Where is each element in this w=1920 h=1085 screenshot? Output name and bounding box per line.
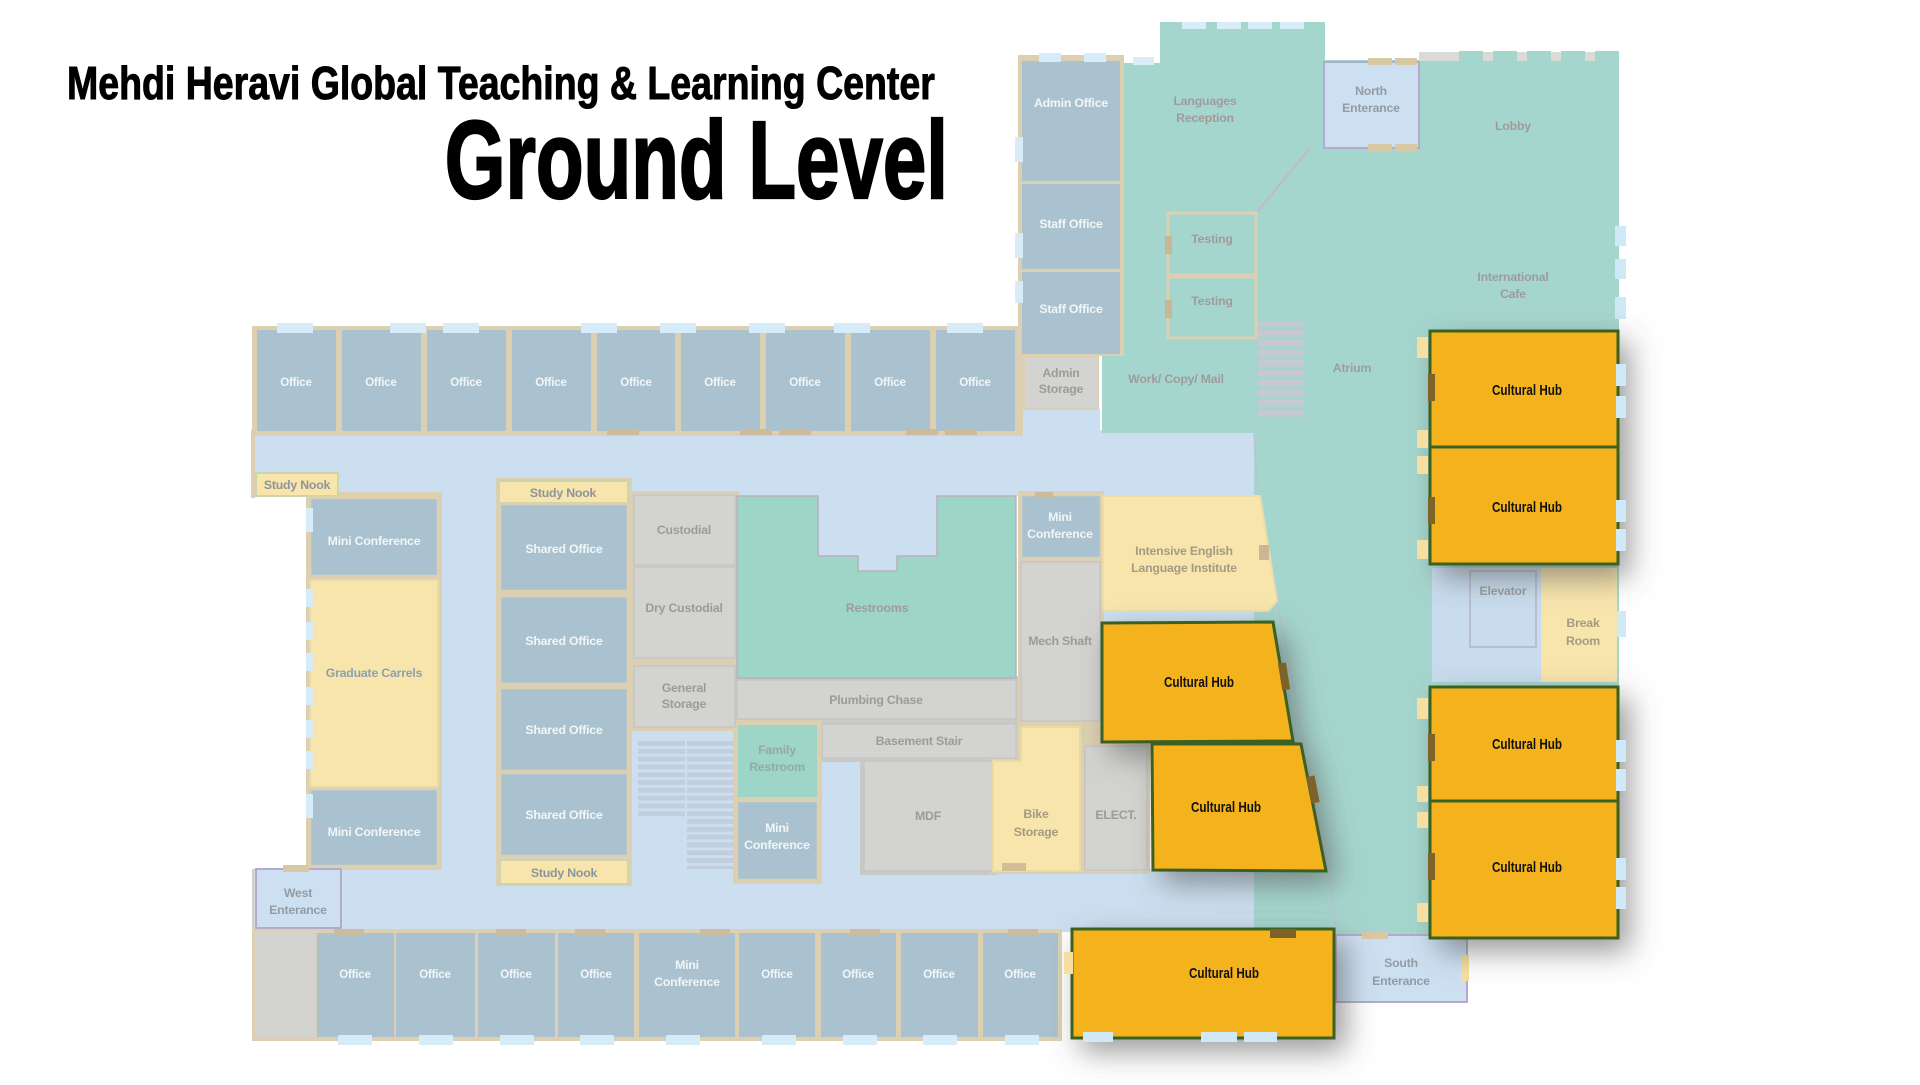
svg-text:Storage: Storage bbox=[662, 697, 707, 711]
svg-text:Cultural Hub: Cultural Hub bbox=[1492, 499, 1562, 516]
svg-text:Cultural Hub: Cultural Hub bbox=[1164, 674, 1234, 691]
svg-text:Study Nook: Study Nook bbox=[531, 866, 598, 880]
svg-text:Cultural Hub: Cultural Hub bbox=[1189, 965, 1259, 982]
svg-text:Shared Office: Shared Office bbox=[525, 808, 603, 822]
svg-text:Cafe: Cafe bbox=[1500, 287, 1526, 301]
svg-text:North: North bbox=[1355, 84, 1387, 98]
svg-text:Office: Office bbox=[704, 377, 735, 389]
svg-text:Basement Stair: Basement Stair bbox=[876, 734, 963, 748]
svg-text:Testing: Testing bbox=[1191, 294, 1232, 308]
svg-text:Office: Office bbox=[419, 969, 450, 981]
svg-text:Dry Custodial: Dry Custodial bbox=[645, 601, 722, 615]
svg-text:Enterance: Enterance bbox=[1372, 974, 1430, 988]
svg-text:Plumbing Chase: Plumbing Chase bbox=[829, 693, 923, 707]
svg-text:Shared Office: Shared Office bbox=[525, 723, 603, 737]
svg-text:Testing: Testing bbox=[1191, 232, 1232, 246]
svg-text:Study Nook: Study Nook bbox=[264, 478, 331, 492]
svg-text:Office: Office bbox=[761, 969, 792, 981]
svg-text:Atrium: Atrium bbox=[1333, 361, 1372, 375]
svg-text:Mini: Mini bbox=[1048, 510, 1072, 524]
svg-text:Intensive English: Intensive English bbox=[1135, 544, 1233, 558]
svg-text:Mini: Mini bbox=[675, 958, 699, 972]
svg-text:Admin: Admin bbox=[1042, 366, 1079, 380]
svg-text:Office: Office bbox=[339, 969, 370, 981]
svg-text:Storage: Storage bbox=[1014, 825, 1059, 839]
svg-text:Office: Office bbox=[1004, 969, 1035, 981]
svg-text:Elevator: Elevator bbox=[1480, 584, 1527, 598]
svg-text:Graduate Carrels: Graduate Carrels bbox=[326, 666, 423, 680]
svg-text:General: General bbox=[662, 681, 706, 695]
svg-text:Mini Conference: Mini Conference bbox=[328, 534, 421, 548]
svg-text:Lobby: Lobby bbox=[1495, 119, 1531, 133]
svg-text:Conference: Conference bbox=[1027, 527, 1093, 541]
svg-text:Office: Office bbox=[923, 969, 954, 981]
svg-text:Mini: Mini bbox=[765, 821, 789, 835]
svg-text:Enterance: Enterance bbox=[1342, 101, 1400, 115]
svg-text:Mech Shaft: Mech Shaft bbox=[1028, 634, 1092, 648]
svg-text:Cultural Hub: Cultural Hub bbox=[1492, 736, 1562, 753]
svg-text:Shared Office: Shared Office bbox=[525, 542, 603, 556]
svg-text:Staff Office: Staff Office bbox=[1039, 217, 1103, 231]
svg-text:South: South bbox=[1384, 956, 1418, 970]
svg-text:Shared Office: Shared Office bbox=[525, 634, 603, 648]
svg-text:Mini Conference: Mini Conference bbox=[328, 825, 421, 839]
svg-text:Family: Family bbox=[758, 743, 796, 757]
svg-text:Staff Office: Staff Office bbox=[1039, 302, 1103, 316]
svg-text:Room: Room bbox=[1566, 634, 1600, 648]
svg-text:Reception: Reception bbox=[1176, 111, 1234, 125]
svg-text:Office: Office bbox=[450, 377, 481, 389]
svg-text:Enterance: Enterance bbox=[269, 903, 327, 917]
svg-text:Cultural Hub: Cultural Hub bbox=[1492, 382, 1562, 399]
svg-text:International: International bbox=[1477, 270, 1548, 284]
svg-text:Custodial: Custodial bbox=[657, 523, 711, 537]
svg-text:Office: Office bbox=[789, 377, 820, 389]
svg-text:Bike: Bike bbox=[1023, 807, 1049, 821]
svg-text:Conference: Conference bbox=[744, 838, 810, 852]
svg-text:ELECT.: ELECT. bbox=[1095, 808, 1136, 822]
svg-text:Office: Office bbox=[535, 377, 566, 389]
svg-text:Cultural Hub: Cultural Hub bbox=[1191, 799, 1261, 816]
svg-text:Storage: Storage bbox=[1039, 382, 1084, 396]
svg-text:Restrooms: Restrooms bbox=[846, 601, 909, 615]
svg-text:Office: Office bbox=[959, 377, 990, 389]
svg-text:Break: Break bbox=[1566, 616, 1600, 630]
svg-text:Work/ Copy/ Mail: Work/ Copy/ Mail bbox=[1128, 372, 1224, 386]
svg-text:Office: Office bbox=[842, 969, 873, 981]
svg-text:Ground Level: Ground Level bbox=[445, 100, 948, 222]
svg-text:Office: Office bbox=[580, 969, 611, 981]
svg-text:MDF: MDF bbox=[915, 809, 942, 823]
svg-text:Office: Office bbox=[874, 377, 905, 389]
svg-text:Language Institute: Language Institute bbox=[1131, 561, 1237, 575]
svg-text:Admin Office: Admin Office bbox=[1034, 96, 1108, 110]
svg-text:Study Nook: Study Nook bbox=[530, 486, 597, 500]
svg-text:Restroom: Restroom bbox=[749, 760, 805, 774]
svg-text:Conference: Conference bbox=[654, 975, 720, 989]
svg-text:Office: Office bbox=[500, 969, 531, 981]
svg-text:Office: Office bbox=[365, 377, 396, 389]
svg-text:Office: Office bbox=[620, 377, 651, 389]
svg-text:West: West bbox=[284, 886, 312, 900]
svg-text:Office: Office bbox=[280, 377, 311, 389]
svg-text:Languages: Languages bbox=[1173, 94, 1236, 108]
svg-text:Cultural Hub: Cultural Hub bbox=[1492, 859, 1562, 876]
